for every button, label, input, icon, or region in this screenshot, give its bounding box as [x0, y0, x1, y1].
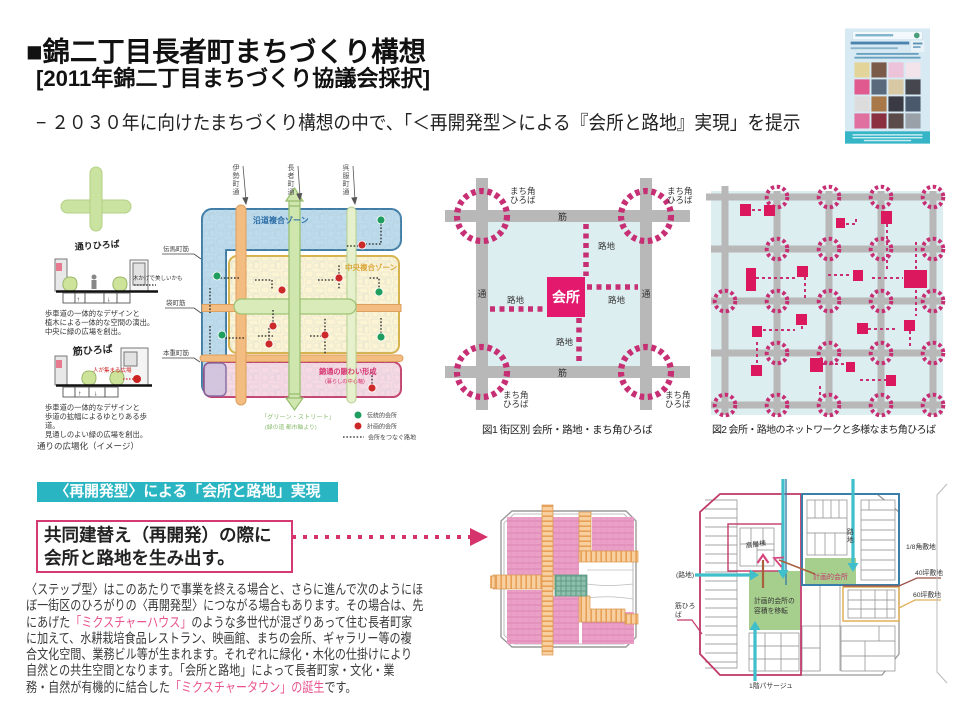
svg-text:(緑の道 都市軸より): (緑の道 都市軸より) — [265, 423, 317, 431]
svg-text:路: 路 — [847, 527, 854, 536]
svg-text:ひろば: ひろば — [665, 399, 691, 409]
svg-text:ひろば: ひろば — [667, 195, 693, 205]
svg-text:通: 通 — [478, 289, 487, 299]
svg-text:通りの広場化（イメージ）: 通りの広場化（イメージ） — [37, 441, 139, 451]
svg-text:ひろば: ひろば — [510, 195, 536, 205]
svg-text:人が集まる広場: 人が集まる広場 — [93, 366, 132, 374]
svg-text:伊勢町通: 伊勢町通 — [233, 163, 240, 196]
svg-text:計画的会所: 計画的会所 — [367, 423, 397, 431]
svg-text:袋町筋: 袋町筋 — [166, 298, 186, 307]
svg-text:歩車道の一体的なデザインと: 歩車道の一体的なデザインと — [45, 403, 140, 412]
svg-text:↓: ↓ — [94, 391, 98, 398]
svg-text:容積を移転: 容積を移転 — [754, 606, 788, 615]
svg-text:↑: ↑ — [77, 297, 81, 304]
svg-text:沿道複合ゾーン: 沿道複合ゾーン — [253, 215, 309, 225]
svg-text:40坪敷地: 40坪敷地 — [915, 568, 943, 577]
svg-text:歩道の拡幅によるゆとりある歩: 歩道の拡幅によるゆとりある歩 — [45, 412, 147, 421]
svg-text:路地: 路地 — [556, 337, 574, 347]
svg-text:見通しのよい緑の広場を創出。: 見通しのよい緑の広場を創出。 — [45, 430, 147, 439]
svg-text:(路地): (路地) — [676, 570, 694, 579]
svg-text:ば: ば — [675, 610, 682, 619]
svg-text:計画的会所: 計画的会所 — [813, 572, 848, 581]
svg-text:1/8角敷地: 1/8角敷地 — [906, 542, 936, 551]
svg-text:長者町通: 長者町通 — [288, 164, 295, 196]
svg-text:(暮らしの中心軸): (暮らしの中心軸) — [325, 377, 365, 385]
svg-text:計画的会所の: 計画的会所の — [754, 596, 795, 605]
svg-text:地: 地 — [847, 535, 854, 544]
svg-text:筋ひろば: 筋ひろば — [71, 342, 113, 358]
svg-text:路地: 路地 — [598, 241, 616, 251]
svg-text:本重町筋: 本重町筋 — [163, 348, 190, 357]
svg-text:呉服町通: 呉服町通 — [343, 164, 350, 196]
svg-text:図2 会所・路地のネットワークと多様なまち角ひろば: 図2 会所・路地のネットワークと多様なまち角ひろば — [712, 423, 936, 436]
svg-text:路地: 路地 — [608, 295, 626, 305]
svg-text:路地: 路地 — [507, 295, 525, 305]
svg-text:筋ひろ: 筋ひろ — [675, 601, 695, 610]
svg-text:筋: 筋 — [558, 367, 567, 378]
svg-text:1階パサージュ: 1階パサージュ — [749, 681, 793, 690]
svg-text:↓: ↓ — [107, 297, 111, 304]
svg-text:錦通の賑わい形成: 錦通の賑わい形成 — [318, 367, 377, 376]
svg-text:伝統的会所: 伝統的会所 — [367, 412, 397, 420]
svg-text:↑: ↑ — [78, 391, 82, 398]
svg-text:中央に緑の広場を創出。: 中央に緑の広場を創出。 — [45, 327, 125, 336]
svg-text:歩車道の一体的なデザインと: 歩車道の一体的なデザインと — [45, 309, 140, 318]
svg-text:会所: 会所 — [552, 289, 580, 305]
svg-text:筋: 筋 — [558, 211, 567, 222]
svg-text:「グリーン・ストリート」: 「グリーン・ストリート」 — [261, 413, 335, 421]
svg-text:図1 街区別 会所・路地・まち角ひろば: 図1 街区別 会所・路地・まち角ひろば — [482, 423, 653, 436]
svg-text:植木による一体的な空間の演出。: 植木による一体的な空間の演出。 — [45, 318, 154, 327]
svg-text:通: 通 — [642, 289, 651, 299]
svg-text:通りひろば: 通りひろば — [74, 238, 120, 252]
svg-text:伝馬町筋: 伝馬町筋 — [163, 244, 190, 253]
svg-text:中央複合ゾーン: 中央複合ゾーン — [345, 262, 398, 272]
svg-text:道。: 道。 — [45, 421, 60, 430]
svg-text:会所をつなぐ路地: 会所をつなぐ路地 — [368, 434, 416, 442]
svg-text:ひろば: ひろば — [503, 399, 529, 409]
